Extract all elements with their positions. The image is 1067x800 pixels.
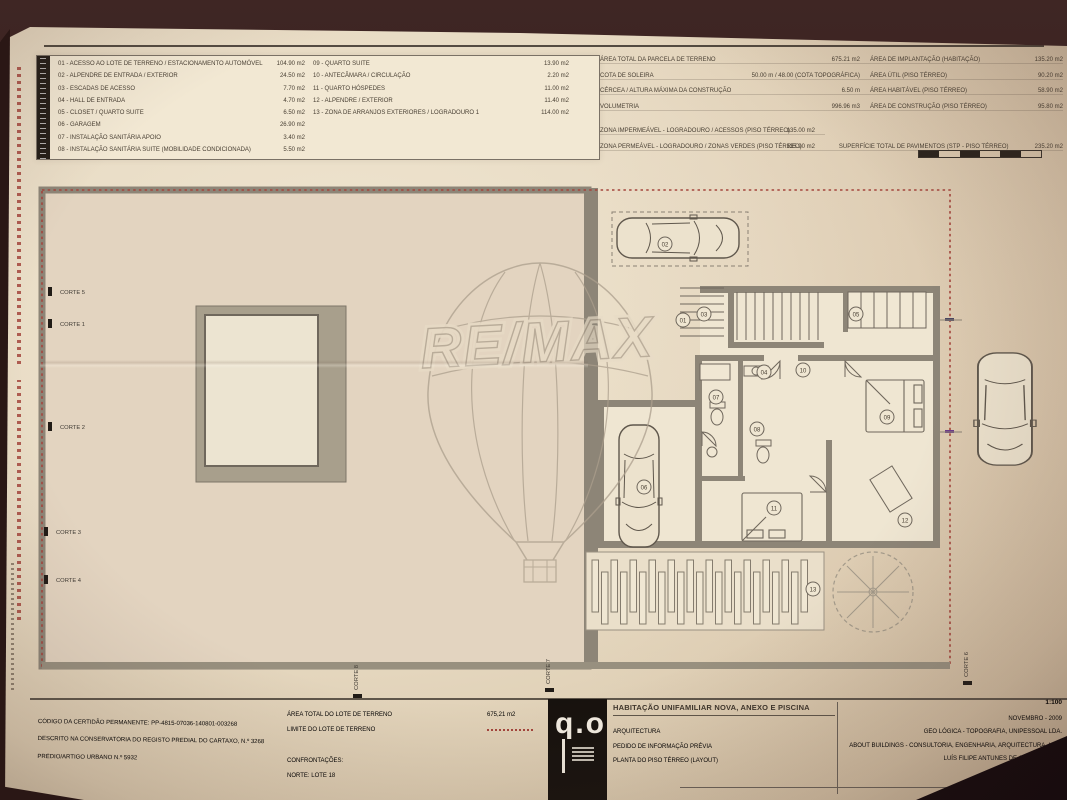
- legend-value: 13.90 m2: [485, 61, 573, 67]
- svg-text:CORTE 6: CORTE 6: [964, 652, 970, 677]
- site-label: ÁREA TOTAL DA PARCELA DE TERRENO: [600, 57, 748, 64]
- edge-annotation: [11, 560, 14, 690]
- svg-text:CORTE 3: CORTE 3: [56, 530, 81, 536]
- legend-value: 104.90 m2: [253, 61, 313, 67]
- legend-value: 7.70 m2: [253, 86, 313, 92]
- edge-annotation-red: [17, 380, 21, 620]
- svg-text:01: 01: [680, 319, 687, 325]
- svg-text:13: 13: [810, 588, 817, 594]
- tree-symbol: [833, 552, 913, 632]
- site-label: COTA DE SOLEIRA: [600, 73, 748, 80]
- site-value: 58.90 m2: [1020, 88, 1063, 95]
- bottom-lot-wall: [42, 662, 950, 669]
- legend-label: 04 - HALL DE ENTRADA: [58, 98, 253, 104]
- site-label: ZONA PERMEÁVEL - LOGRADOURO / ZONAS VERD…: [600, 144, 763, 151]
- legend-value: 6.50 m2: [253, 110, 313, 116]
- site-value: 675.21 m2: [748, 57, 870, 64]
- svg-text:05: 05: [853, 313, 860, 319]
- site-value: 6.50 m: [748, 88, 870, 95]
- legend-value: 26.90 m2: [253, 122, 313, 128]
- legend-value: 2.20 m2: [485, 73, 573, 79]
- site-value: 996.96 m3: [748, 104, 870, 111]
- svg-text:03: 03: [701, 313, 708, 319]
- svg-text:CORTE 2: CORTE 2: [60, 425, 85, 431]
- site-value: 135.00 m2: [763, 128, 825, 135]
- legend-label: 09 - QUARTO SUITE: [313, 61, 485, 67]
- legend-label: 01 - ACESSO AO LOTE DE TERRENO / ESTACIO…: [58, 61, 253, 67]
- svg-text:11: 11: [771, 507, 778, 513]
- survey-ticks: [940, 318, 962, 433]
- legend-value: 11.00 m2: [485, 86, 573, 92]
- legend-label: 02 - ALPENDRE DE ENTRADA / EXTERIOR: [58, 73, 253, 79]
- paper-crease: [40, 360, 588, 368]
- credits-rule: [680, 787, 1062, 788]
- confrontations-label: CONFRONTAÇÕES:: [287, 758, 343, 764]
- engineering-company: ABOUT BUILDINGS - CONSULTORIA, ENGENHARI…: [841, 743, 1062, 749]
- svg-text:04: 04: [761, 371, 768, 377]
- svg-text:CORTE 8: CORTE 8: [354, 665, 360, 690]
- svg-text:CORTE 4: CORTE 4: [56, 578, 82, 584]
- site-label: ZONA IMPERMEÁVEL - LOGRADOURO / ACESSOS …: [600, 128, 763, 135]
- registry-line: PRÉDIO/ARTIGO URBANO N.º 5932: [37, 749, 264, 770]
- site-value: 50.00 m / 48.00 (COTA TOPOGRÁFICA): [748, 73, 870, 80]
- logo-text: q.o: [555, 707, 606, 741]
- sheet-border-line: [44, 45, 1044, 47]
- bed-suite: [866, 380, 924, 432]
- svg-text:08: 08: [754, 428, 761, 434]
- site-label: CÉRCEA / ALTURA MÁXIMA DA CONSTRUÇÃO: [600, 88, 748, 95]
- svg-text:02: 02: [662, 243, 669, 249]
- legend-label: 08 - INSTALAÇÃO SANITÁRIA SUITE (MOBILID…: [58, 147, 253, 153]
- graphic-scale-bar: [918, 150, 1042, 158]
- lot-area-value: 675,21 m2: [487, 712, 545, 718]
- lot-info: ÁREA TOTAL DO LOTE DE TERRENO 675,21 m2 …: [287, 712, 545, 788]
- legend-vertical-strip: [37, 56, 50, 159]
- svg-text:07: 07: [713, 396, 720, 402]
- svg-text:09: 09: [884, 416, 891, 422]
- legend-label: 10 - ANTECÂMARA / CIRCULAÇÃO: [313, 73, 485, 79]
- svg-text:06: 06: [641, 486, 648, 492]
- legend-value: 114.00 m2: [485, 110, 573, 116]
- registry-info: CÓDIGO DA CERTIDÃO PERMANENTE: PP-4815-0…: [37, 714, 264, 769]
- left-parcel: [42, 188, 598, 668]
- legend-value: 3.40 m2: [253, 135, 313, 141]
- legend-label: 12 - ALPENDRE / EXTERIOR: [313, 98, 485, 104]
- photo-of-floor-plan-sheet: 01 02 03 04 05 06 07 08 09 10 11 12 13 C…: [0, 0, 1067, 800]
- site-value: 135.20 m2: [1020, 57, 1063, 64]
- scale-value: 1:100: [841, 700, 1062, 707]
- signature-mark: [1036, 771, 1062, 774]
- legend-label: 07 - INSTALAÇÃO SANITÁRIA APOIO: [58, 135, 253, 141]
- svg-text:12: 12: [902, 519, 909, 525]
- site-value: 95.80 m2: [1020, 104, 1063, 111]
- topography-company: GEO LÓGICA - TOPOGRAFIA, UNIPESSOAL LDA.: [841, 729, 1062, 735]
- site-data-table: ÁREA TOTAL DA PARCELA DE TERRENO 675.21 …: [600, 57, 1063, 159]
- svg-text:CORTE 5: CORTE 5: [60, 290, 85, 296]
- date-value: NOVEMBRO - 2009: [841, 716, 1062, 722]
- edge-annotation-red: [17, 64, 21, 364]
- bed-guest: [742, 493, 802, 541]
- credits: 1:100 NOVEMBRO - 2009 GEO LÓGICA - TOPOG…: [841, 700, 1062, 783]
- legend-label: 05 - CLOSET / QUARTO SUITE: [58, 110, 253, 116]
- site-value: 90.20 m2: [1020, 73, 1063, 80]
- car-parking: [617, 215, 739, 261]
- lot-limit-label: LIMITE DO LOTE DE TERRENO: [287, 727, 487, 733]
- discipline-label: ARQUITECTURA: [613, 725, 835, 740]
- room-legend: 01 - ACESSO AO LOTE DE TERRENO / ESTACIO…: [36, 55, 600, 160]
- pool: [196, 306, 346, 482]
- architect-logo: q.o: [548, 699, 607, 800]
- legend-value: 11.40 m2: [485, 98, 573, 104]
- lot-area-label: ÁREA TOTAL DO LOTE DE TERRENO: [287, 712, 487, 718]
- pergola-deck: [586, 552, 824, 630]
- legend-label: 13 - ZONA DE ARRANJOS EXTERIORES / LOGRA…: [313, 110, 485, 116]
- lot-limit-symbol: [487, 729, 533, 731]
- legend-label: 06 - GARAGEM: [58, 122, 253, 128]
- remax-wordmark: RE/MAX: [419, 305, 657, 381]
- site-value: 135.90 m2: [763, 144, 825, 151]
- site-label: ÁREA DE CONSTRUÇÃO (PISO TÉRREO): [870, 104, 1020, 111]
- svg-text:CORTE 7: CORTE 7: [546, 659, 552, 684]
- car-street: [974, 353, 1036, 465]
- svg-text:10: 10: [800, 369, 807, 375]
- site-label: VOLUMETRIA: [600, 104, 748, 111]
- drawing-titles: HABITAÇÃO UNIFAMILIAR NOVA, ANEXO E PISC…: [613, 703, 835, 769]
- site-label: ÁREA HABITÁVEL (PISO TÉRREO): [870, 88, 1020, 95]
- logo-mark: [562, 739, 565, 773]
- title-block-divider: [837, 702, 838, 794]
- phase-label: PEDIDO DE INFORMAÇÃO PRÉVIA: [613, 740, 835, 755]
- drawing-name: PLANTA DO PISO TÉRREO (LAYOUT): [613, 754, 835, 769]
- legend-value: 24.50 m2: [253, 73, 313, 79]
- legend-value: 4.70 m2: [253, 98, 313, 104]
- legend-label: 11 - QUARTO HÓSPEDES: [313, 86, 485, 92]
- legend-value: 5.50 m2: [253, 147, 313, 153]
- svg-text:CORTE 1: CORTE 1: [60, 322, 85, 328]
- site-label: ÁREA DE IMPLANTAÇÃO (HABITAÇÃO): [870, 57, 1020, 64]
- architect-name: LUÍS FILIPE ANTUNES DE GUERRA, ARQ.: [841, 756, 1062, 762]
- logo-address-lines: [572, 747, 594, 761]
- legend-label: 03 - ESCADAS DE ACESSO: [58, 86, 253, 92]
- project-title: HABITAÇÃO UNIFAMILIAR NOVA, ANEXO E PISC…: [613, 703, 835, 716]
- confrontation-north: NORTE: LOTE 18: [287, 773, 335, 779]
- site-label: ÁREA ÚTIL (PISO TÉRREO): [870, 73, 1020, 80]
